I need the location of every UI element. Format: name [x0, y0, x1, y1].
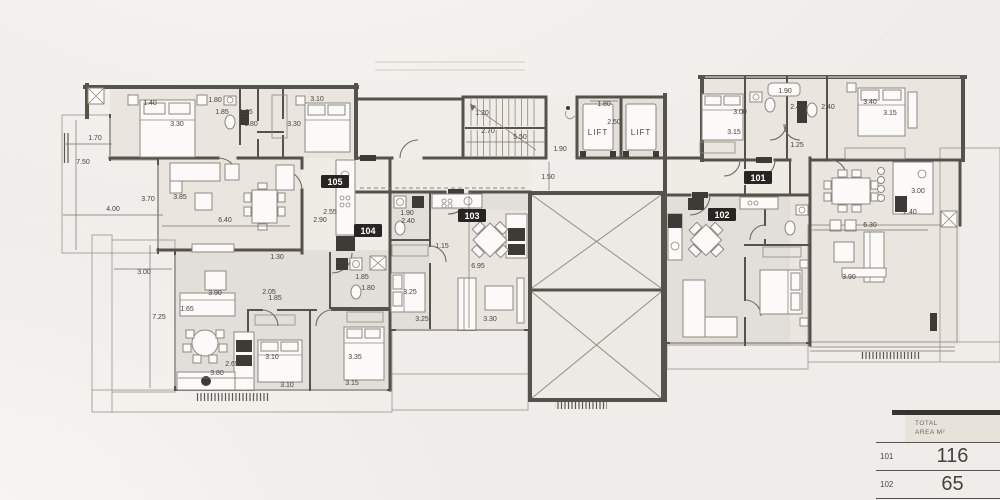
dimension-label: 2.90	[313, 217, 327, 224]
unit-badge-label: 102	[714, 210, 729, 220]
dimension-label: 1.80	[361, 285, 375, 292]
dimension-label: 3.30	[287, 121, 301, 128]
dimension-label: 7.50	[76, 159, 90, 166]
dimension-label: 6.95	[471, 263, 485, 270]
dimension-label: 2.70	[481, 128, 495, 135]
deck-post	[930, 313, 937, 331]
entry-threshold-102	[692, 192, 708, 198]
area-table: TOTAL AREA M² 10111610265	[876, 410, 1000, 499]
coffee-table	[195, 193, 212, 210]
dimension-label: 3.30	[170, 121, 184, 128]
dimension-label: 3.25	[415, 316, 429, 323]
area-table-header: TOTAL AREA M²	[876, 415, 1000, 443]
lift-car-1	[583, 104, 613, 150]
dimension-label: 1.80	[244, 121, 258, 128]
lift-label: LIFT	[631, 128, 651, 137]
area-table-row: 101116	[876, 443, 1000, 471]
deck-terrace-unit102	[667, 345, 808, 369]
lift-car-2	[626, 104, 656, 150]
unit-badge-label: 103	[464, 211, 479, 221]
dimension-label: 6.40	[218, 217, 232, 224]
dimension-label: 2.40	[903, 209, 917, 216]
balustrade-marks-bottom-left	[195, 393, 270, 401]
area-table-header-line2: AREA M²	[915, 429, 1000, 438]
dimension-label: 1.85	[215, 109, 229, 116]
dimension-label: 1.80	[208, 97, 222, 104]
unit-badge-103: 103	[458, 209, 486, 222]
unit-badge-label: 104	[360, 226, 375, 236]
dimension-label: 7.25	[152, 314, 166, 321]
floor-plan: 1.707.503.704.001.403.301.801.851.851.80…	[0, 0, 1000, 500]
dimension-label: 1.85	[355, 274, 369, 281]
dimension-label: 3.15	[727, 129, 741, 136]
coffee-table	[205, 271, 226, 290]
dimension-label: 2.40	[821, 104, 835, 111]
balustrade-marks-bottom-right	[860, 352, 920, 359]
tv-bench	[192, 244, 234, 252]
area-table-header-line1: TOTAL	[915, 420, 1000, 429]
unit-badge-label: 101	[750, 173, 765, 183]
dimension-label: 3.15	[883, 110, 897, 117]
dimension-label: 3.10	[280, 382, 294, 389]
dimension-label: 3.00	[911, 188, 925, 195]
balustrade-marks-left	[62, 133, 69, 163]
dimension-label: 3.40	[863, 99, 877, 106]
dimension-label: 1.50	[541, 174, 555, 181]
unit-number: 102	[876, 480, 905, 489]
dimension-label: 1.70	[88, 135, 102, 142]
dimension-label: 1.25	[790, 142, 804, 149]
dimension-label: 2.40	[790, 104, 804, 111]
dimension-label: 1.20	[475, 110, 489, 117]
bed	[128, 95, 207, 157]
area-table-rows: 10111610265	[876, 443, 1000, 499]
dimension-label: 1.65	[180, 306, 194, 313]
dimension-label: 3.15	[345, 380, 359, 387]
area-table-header-spacer	[876, 415, 905, 442]
dimension-label: 3.35	[348, 354, 362, 361]
dimension-label: 1.90	[778, 88, 792, 95]
dimension-label: 3.70	[141, 196, 155, 203]
dimension-label: 3.00	[137, 269, 151, 276]
planter-box-icon	[941, 211, 957, 227]
dimension-label: 3.25	[403, 289, 417, 296]
dimension-label: 3.10	[265, 354, 279, 361]
balustrade-marks-bottom-center	[555, 401, 607, 409]
lift-label: LIFT	[588, 128, 608, 137]
dimension-label: 3.90	[208, 290, 222, 297]
sofa	[458, 278, 476, 330]
unit-area-value: 116	[905, 445, 1000, 468]
bed	[258, 340, 302, 382]
unit-area-value: 65	[905, 473, 1000, 496]
dimension-label: 1.90	[553, 146, 567, 153]
dimension-label: 3.10	[310, 96, 324, 103]
unit-number: 101	[876, 452, 905, 461]
area-table-header-cell: TOTAL AREA M²	[905, 415, 1000, 442]
lower-terrace-unit103	[392, 374, 528, 410]
dimension-label: 3.30	[483, 316, 497, 323]
dimension-label: 1.40	[143, 100, 157, 107]
dimension-label: 2.55	[323, 209, 337, 216]
tv-bench	[517, 278, 524, 323]
area-table-row: 10265	[876, 471, 1000, 499]
dimension-label: 3.00	[733, 109, 747, 116]
dimension-label: 2.65	[225, 361, 239, 368]
entry-threshold-105	[360, 155, 376, 161]
planter-box-icon	[88, 88, 104, 104]
garden-strip-left	[92, 235, 112, 412]
dimension-label: 5.50	[513, 134, 527, 141]
rug	[485, 286, 513, 310]
dimension-label: 1.15	[435, 243, 449, 250]
unit-badge-101: 101	[744, 171, 772, 184]
dimension-label: 1.80	[597, 101, 611, 108]
unit-badge-105: 105	[321, 175, 349, 188]
unit-badge-102: 102	[708, 208, 736, 221]
entry-threshold-101	[756, 157, 772, 163]
dimension-label: 3.85	[173, 194, 187, 201]
unit-badge-104: 104	[354, 224, 382, 237]
dimension-label: 1.90	[400, 210, 414, 217]
dimension-label: 3.80	[210, 370, 224, 377]
dimension-label: 6.30	[863, 222, 877, 229]
dimension-label: 2.40	[401, 218, 415, 225]
unit-badge-label: 105	[327, 177, 342, 187]
dimension-label: 1.85	[239, 109, 253, 116]
deck-terrace-unit103	[392, 330, 528, 374]
dimension-label: 3.90	[842, 274, 856, 281]
dimension-label: 1.30	[270, 254, 284, 261]
dimension-label: 4.00	[106, 206, 120, 213]
dimension-label: 2.50	[607, 119, 621, 126]
dimension-label: 1.85	[268, 295, 282, 302]
